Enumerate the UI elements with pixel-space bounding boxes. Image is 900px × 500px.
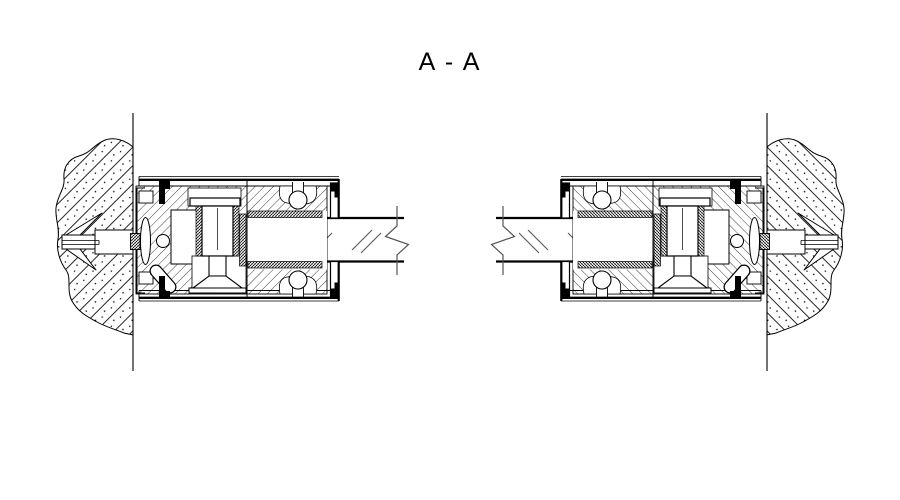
section-title: A - A xyxy=(419,48,482,76)
drawing-sheet: A - A xyxy=(0,0,900,500)
section-aa-drawing: A - A xyxy=(0,0,900,500)
